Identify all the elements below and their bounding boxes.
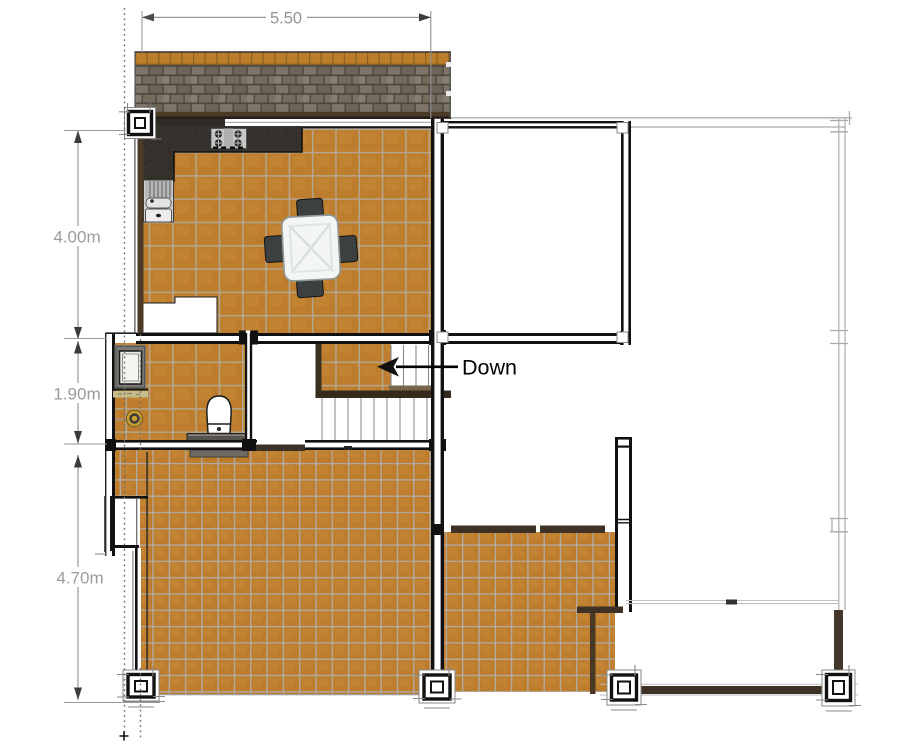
svg-text:Down: Down xyxy=(462,356,517,380)
svg-text:1.90m: 1.90m xyxy=(53,385,100,404)
svg-text:4.70m: 4.70m xyxy=(56,569,103,588)
svg-text:5.50: 5.50 xyxy=(270,10,302,28)
svg-text:4.00m: 4.00m xyxy=(53,228,100,247)
